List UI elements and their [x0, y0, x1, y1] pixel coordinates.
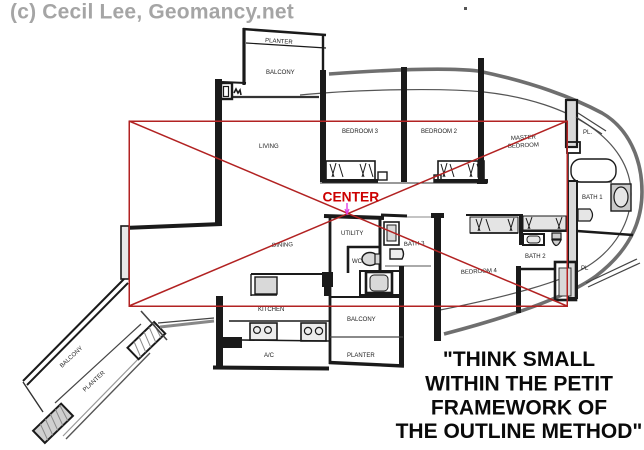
- svg-text:DINING: DINING: [272, 242, 294, 249]
- svg-text:KITCHEN: KITCHEN: [258, 307, 284, 313]
- svg-text:CENTER: CENTER: [323, 190, 380, 205]
- svg-text:THE OUTLINE METHOD": THE OUTLINE METHOD": [396, 420, 643, 443]
- svg-text:BEDROOM 2: BEDROOM 2: [421, 129, 458, 135]
- svg-text:BALCONY: BALCONY: [266, 70, 295, 76]
- svg-text:PL: PL: [581, 266, 589, 272]
- svg-text:PL.: PL.: [583, 130, 592, 136]
- svg-text:BEDROOM 3: BEDROOM 3: [342, 129, 379, 135]
- svg-text:A/C: A/C: [264, 353, 275, 359]
- svg-text:UTILITY: UTILITY: [341, 231, 363, 237]
- svg-text:BALCONY: BALCONY: [347, 317, 376, 323]
- svg-text:FRAMEWORK OF: FRAMEWORK OF: [431, 397, 607, 420]
- svg-text:WITHIN THE PETIT: WITHIN THE PETIT: [425, 373, 613, 396]
- svg-text:PLANTER: PLANTER: [347, 353, 375, 359]
- svg-text:WC: WC: [352, 259, 363, 265]
- svg-text:"THINK SMALL: "THINK SMALL: [443, 348, 595, 371]
- svg-text:BATH 2: BATH 2: [525, 254, 546, 260]
- svg-text:BATH 1: BATH 1: [582, 195, 603, 201]
- svg-text:LIVING: LIVING: [259, 144, 279, 150]
- svg-text:(c) Cecil Lee, Geomancy.net: (c) Cecil Lee, Geomancy.net: [10, 1, 294, 24]
